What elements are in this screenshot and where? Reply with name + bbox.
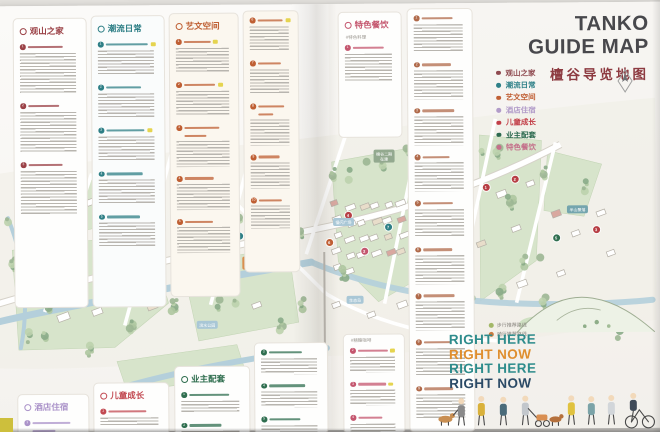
panel-item: 3 [414, 108, 466, 146]
legend-item: 酒店住宿 [496, 104, 536, 117]
legend-label: 儿童成长 [506, 117, 536, 128]
slogan-line: RIGHT HERE [449, 333, 536, 348]
panel-header: 特色餐饮 [345, 19, 395, 31]
map-pin: 1 [482, 183, 489, 190]
section-bullet-icon [176, 23, 183, 30]
panel-item: 2 [98, 84, 158, 119]
item-number-marker: 2 [350, 348, 356, 354]
map-pin: 7 [385, 223, 392, 230]
panel-item: 1 [414, 15, 466, 53]
panel-item: 1 [20, 44, 80, 95]
panel-item: 5 [177, 219, 233, 253]
item-number-marker: 9 [416, 386, 422, 392]
item-number-marker: 7 [416, 293, 422, 299]
item-number-marker: 8 [416, 340, 422, 346]
panel-item: 1 [100, 408, 162, 427]
item-number-marker: 2 [176, 82, 182, 88]
panel-item: 7 [416, 293, 468, 331]
map-label-badge: 半山聚落 [567, 205, 588, 213]
item-number-marker: 4 [350, 415, 356, 421]
section-bullet-icon [98, 25, 105, 32]
item-number-marker: 2 [414, 62, 420, 68]
panel-item: 6 [250, 17, 292, 51]
legend-dot-icon [496, 83, 501, 88]
person-with-stroller [522, 395, 550, 426]
panel-kids: 儿童成长 12 [93, 382, 169, 432]
panel-item: 9 [251, 154, 293, 188]
map-pin: 6 [326, 238, 333, 245]
map-title-line2: GUIDE MAP [519, 35, 649, 59]
legend-dot-icon [496, 108, 501, 113]
legend-dot-icon [496, 120, 501, 125]
panel-item: 4 [415, 154, 467, 192]
item-number-marker: 6 [250, 18, 256, 24]
bottom-edge-shadow [0, 428, 660, 432]
item-number-marker: 5 [177, 219, 183, 225]
item-highlight-tag [150, 42, 155, 46]
legend-item: 观山之家 [496, 67, 536, 80]
panel-art-space-cont: 678910 [243, 10, 301, 272]
item-number-marker: 4 [261, 383, 267, 389]
legend-dot-icon [496, 96, 501, 101]
item-number-marker: 1 [98, 42, 104, 48]
panel-food-cont: #精酿咖啡234 [343, 333, 406, 432]
panel-item: 3 [261, 349, 321, 374]
map-label-badge: 檀谷二期在建 [374, 150, 395, 163]
panel-item: 4 [177, 175, 233, 209]
panel-header: 观山之家 [20, 25, 80, 37]
map-pin: 3 [593, 226, 600, 233]
item-number-marker: 3 [350, 382, 356, 388]
item-number-marker: 1 [181, 392, 187, 398]
item-number-marker: 4 [177, 176, 183, 182]
item-number-marker: 3 [261, 350, 267, 356]
legend-label: 特色餐饮 [506, 142, 536, 153]
panel-item: 3 [176, 125, 232, 167]
legend-item: 业主配套 [496, 129, 536, 142]
panel-item: 3 [21, 162, 81, 216]
panel-item: 4 [99, 170, 159, 205]
item-number-marker: 5 [261, 417, 267, 423]
map-label-badge: 滨水公园 [197, 321, 218, 329]
legend-label: 潮流日常 [506, 80, 536, 91]
panel-item: 5 [415, 200, 467, 238]
item-number-marker: 1 [100, 409, 106, 415]
panel-header: 业主配套 [181, 373, 243, 385]
panel-header: 艺文空间 [176, 20, 232, 32]
map-title-line1: TANKO [519, 12, 649, 36]
panel-owner-cont: 345 [254, 342, 329, 432]
item-number-marker: 1 [345, 45, 351, 51]
item-highlight-tag [218, 83, 223, 87]
panel-food: 特色餐饮 #特色料理1 [338, 11, 403, 137]
panel-item: 4 [261, 383, 321, 408]
item-number-marker: 1 [414, 16, 420, 22]
item-number-marker: 5 [415, 201, 421, 207]
legend-item: 艺文空间 [496, 91, 536, 104]
panel-header: 酒店住宿 [24, 401, 82, 413]
dog-icon [438, 407, 460, 425]
category-legend: 观山之家潮流日常艺文空间酒店住宿儿童成长业主配套特色餐饮 [496, 67, 536, 154]
legend-label: 艺文空间 [506, 92, 536, 103]
panel-item: 1 [98, 41, 158, 76]
route-legend-item: 步行推荐路线 [489, 321, 527, 330]
legend-item: 儿童成长 [496, 116, 536, 129]
right-edge-shadow [652, 0, 660, 432]
panel-sub-label: #特色料理 [346, 35, 395, 41]
photo-of-brochure: 观山之家 123 潮流日常 12345 艺文空间 12345 678910 特色… [0, 0, 660, 432]
panel-item: 2 [20, 103, 80, 154]
section-bullet-icon [20, 28, 27, 35]
panel-sub-label: #精酿咖啡 [351, 338, 398, 344]
compass-icon [612, 68, 638, 94]
item-number-marker: 1 [24, 420, 30, 426]
section-bullet-icon [100, 392, 107, 399]
legend-label: 酒店住宿 [506, 104, 536, 115]
map-label-badge: 慢闪广场 [333, 218, 354, 226]
people-illustration [433, 362, 657, 432]
item-number-marker: 3 [176, 125, 182, 131]
panel-item: 1 [176, 39, 232, 73]
person [458, 398, 465, 425]
map-pin: 2 [511, 175, 518, 182]
panel-item: 10 [251, 197, 293, 228]
panel-item: 8 [250, 103, 292, 145]
legend-label: 业主配套 [506, 129, 536, 140]
item-highlight-tag [213, 40, 218, 44]
panel-trend-daily: 潮流日常 12345 [91, 15, 167, 308]
route-label: 步行推荐路线 [497, 322, 527, 329]
person [608, 395, 615, 424]
panel-art-space: 艺文空间 12345 [169, 13, 241, 297]
section-bullet-icon [181, 375, 188, 382]
legend-dot-icon [496, 133, 501, 138]
item-highlight-tag [147, 129, 152, 133]
panel-item: 6 [415, 247, 467, 285]
panel-header: 儿童成长 [100, 389, 162, 401]
item-number-marker: 4 [99, 171, 105, 177]
panel-guanshan-home: 观山之家 123 [13, 18, 89, 309]
map-label-badge: 生态岛 [347, 296, 364, 304]
panel-header: 潮流日常 [98, 22, 158, 34]
person [588, 396, 595, 424]
item-number-marker: 6 [415, 247, 421, 253]
panel-item: 7 [250, 60, 292, 94]
panel-item: 3 [350, 381, 398, 406]
legend-item: 特色餐饮 [496, 141, 536, 154]
person [568, 395, 575, 424]
legend-dot-icon [496, 71, 501, 76]
item-number-marker: 9 [251, 155, 257, 161]
brochure-paper: 观山之家 123 潮流日常 12345 艺文空间 12345 678910 特色… [0, 2, 660, 432]
legend-item: 潮流日常 [496, 79, 536, 92]
corner-object [0, 418, 13, 432]
legend-label: 观山之家 [505, 67, 535, 78]
item-number-marker: 3 [98, 128, 104, 134]
item-number-marker: 4 [415, 155, 421, 161]
panel-item: 2 [350, 348, 398, 373]
item-number-marker: 10 [251, 198, 257, 204]
item-number-marker: 2 [98, 85, 104, 91]
panel-item: 1 [181, 392, 243, 414]
map-pin: 2 [361, 247, 368, 254]
item-number-marker: 7 [250, 61, 256, 67]
dog-icon [549, 414, 563, 425]
legend-dot-icon [497, 145, 502, 150]
section-bullet-icon [24, 404, 31, 411]
map-pin: 5 [553, 234, 560, 241]
route-dot-icon [489, 323, 494, 328]
item-number-marker: 3 [414, 108, 420, 114]
panel-hotel: 酒店住宿 1 [17, 394, 89, 432]
panel-item: 3 [98, 127, 158, 162]
panel-item: 1 [345, 45, 395, 83]
item-highlight-tag [285, 19, 290, 23]
item-highlight-tag [388, 382, 393, 386]
panel-item: 2 [414, 61, 466, 99]
item-number-marker: 1 [20, 44, 26, 50]
item-number-marker: 5 [99, 214, 105, 220]
panel-item: 2 [176, 82, 232, 116]
person [500, 397, 507, 425]
panel-item: 5 [99, 214, 159, 249]
person-on-bike [625, 393, 654, 428]
section-bullet-icon [345, 21, 352, 28]
panel-owner: 业主配套 12 [174, 366, 250, 432]
item-highlight-tag [390, 349, 395, 353]
item-number-marker: 8 [250, 104, 256, 110]
item-number-marker: 2 [20, 103, 26, 109]
item-number-marker: 1 [176, 39, 182, 45]
item-number-marker: 3 [21, 163, 27, 169]
person [478, 396, 485, 425]
